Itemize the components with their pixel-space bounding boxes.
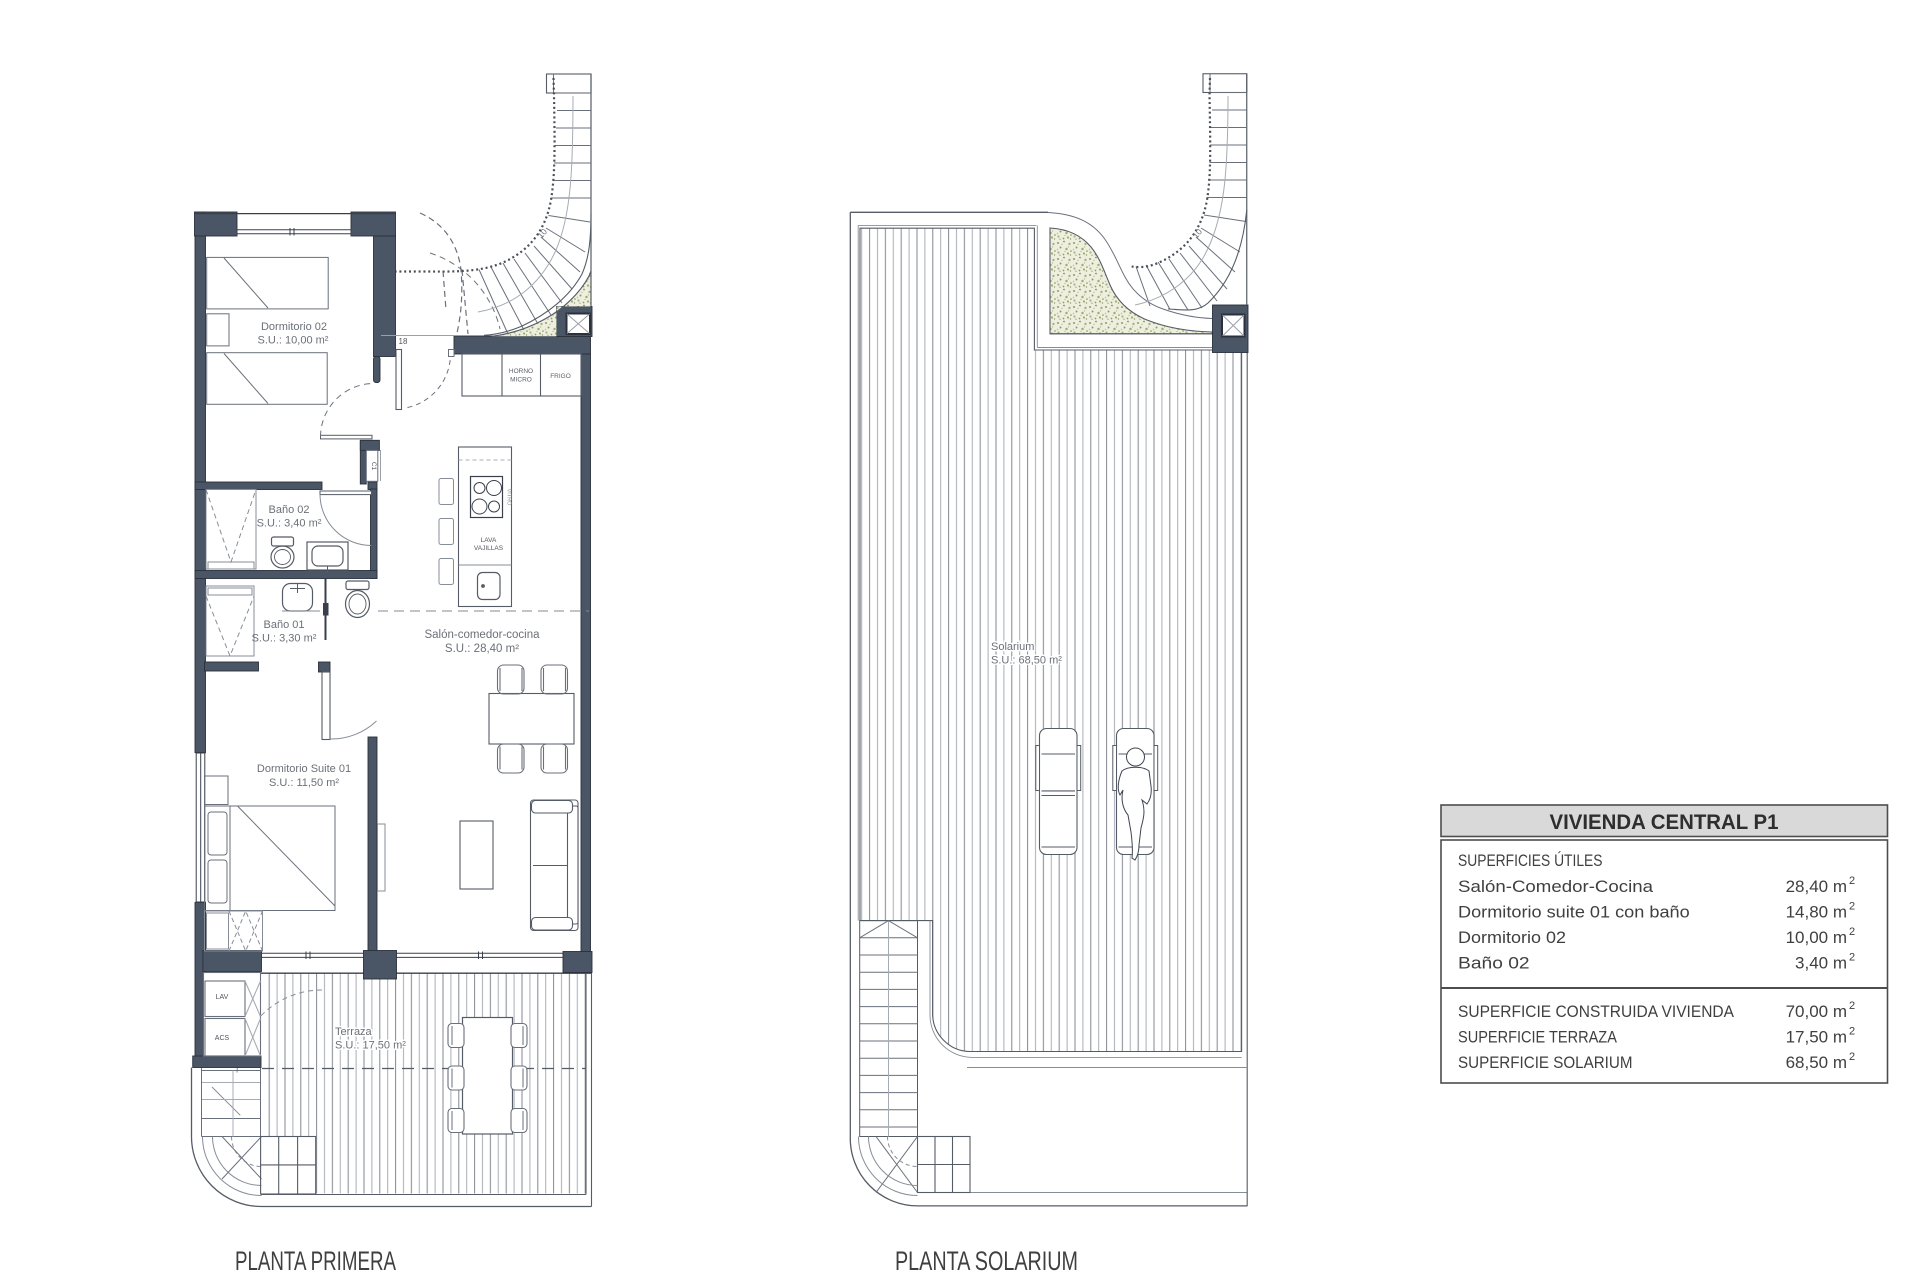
svg-text:Baño 02: Baño 02 (269, 504, 310, 516)
svg-text:Dormitorio Suite 01: Dormitorio Suite 01 (257, 763, 351, 775)
svg-text:SUPERFICIE CONSTRUIDA VIVIENDA: SUPERFICIE CONSTRUIDA VIVIENDA (1458, 1002, 1735, 1021)
svg-text:SUPERFICIE SOLARIUM: SUPERFICIE SOLARIUM (1458, 1053, 1633, 1072)
svg-text:2: 2 (1849, 952, 1855, 964)
svg-text:S.U.: 28,40 m²: S.U.: 28,40 m² (445, 643, 519, 655)
svg-text:VAJILLAS: VAJILLAS (474, 545, 504, 552)
svg-text:2: 2 (1849, 901, 1855, 913)
svg-text:2: 2 (1849, 1051, 1855, 1063)
svg-text:2: 2 (1849, 1000, 1855, 1012)
svg-text:S.U.: 68,50 m²: S.U.: 68,50 m² (991, 655, 1062, 667)
svg-text:S.U.: 17,50 m²: S.U.: 17,50 m² (335, 1040, 406, 1052)
svg-text:Dormitorio suite 01 con baño: Dormitorio suite 01 con baño (1458, 903, 1690, 922)
svg-text:S.U.: 3,30 m²: S.U.: 3,30 m² (252, 633, 317, 645)
svg-text:70,00 m: 70,00 m (1786, 1002, 1847, 1021)
svg-text:Terraza: Terraza (335, 1026, 373, 1038)
svg-text:Salón-Comedor-Cocina: Salón-Comedor-Cocina (1458, 877, 1654, 896)
svg-text:FRIGO: FRIGO (550, 373, 571, 380)
svg-text:Salón-comedor-cocina: Salón-comedor-cocina (424, 629, 540, 641)
svg-text:2: 2 (1849, 1026, 1855, 1038)
svg-text:14,80 m: 14,80 m (1786, 903, 1847, 922)
svg-text:Baño 02: Baño 02 (1458, 954, 1530, 973)
svg-text:S.U.: 11,50 m²: S.U.: 11,50 m² (269, 777, 339, 789)
svg-text:HORNO: HORNO (509, 368, 533, 375)
svg-text:LAVA: LAVA (481, 537, 497, 544)
svg-text:3,40 m: 3,40 m (1795, 954, 1847, 973)
svg-text:ACS: ACS (215, 1035, 230, 1042)
svg-text:C1: C1 (370, 462, 377, 471)
svg-text:MICRO: MICRO (510, 377, 532, 384)
svg-text:2: 2 (1849, 875, 1855, 887)
svg-text:2: 2 (1849, 926, 1855, 938)
svg-text:17,50 m: 17,50 m (1786, 1028, 1847, 1047)
svg-text:SUPERFICIES ÚTILES: SUPERFICIES ÚTILES (1458, 851, 1603, 870)
svg-text:PLANTA SOLARIUM: PLANTA SOLARIUM (895, 1246, 1078, 1276)
svg-text:SUPERFICIE TERRAZA: SUPERFICIE TERRAZA (1458, 1028, 1617, 1047)
svg-text:Baño 01: Baño 01 (264, 619, 305, 631)
svg-text:10,00 m: 10,00 m (1786, 928, 1847, 947)
svg-text:Dormitorio 02: Dormitorio 02 (261, 321, 327, 333)
svg-text:28,40 m: 28,40 m (1786, 877, 1847, 896)
svg-text:S.U.: 10,00 m²: S.U.: 10,00 m² (258, 335, 329, 347)
svg-text:Solarium: Solarium (991, 641, 1034, 653)
svg-text:68,50 m: 68,50 m (1786, 1053, 1847, 1072)
svg-text:VIVIENDA CENTRAL P1: VIVIENDA CENTRAL P1 (1550, 811, 1779, 834)
svg-text:S.U.: 3,40 m²: S.U.: 3,40 m² (257, 518, 322, 530)
svg-text:LAV: LAV (216, 994, 229, 1001)
svg-text:PLANTA PRIMERA: PLANTA PRIMERA (235, 1246, 396, 1276)
svg-text:18: 18 (399, 337, 408, 346)
svg-text:VITRO: VITRO (506, 489, 512, 507)
svg-text:Dormitorio 02: Dormitorio 02 (1458, 928, 1566, 947)
